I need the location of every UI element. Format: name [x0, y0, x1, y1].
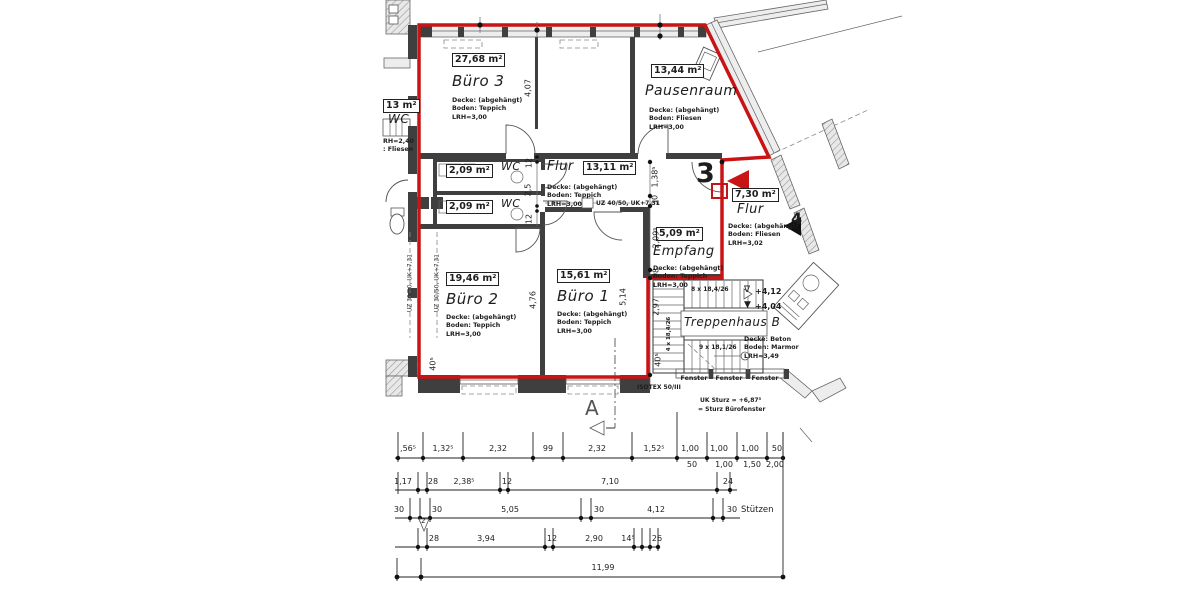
- vdim-wall-bottom: 12: [525, 214, 534, 224]
- area-badge-wc-a: 2,09 m²: [446, 164, 493, 178]
- sturz-note-line2: = Sturz Bürofenster: [698, 406, 765, 413]
- vdim-405-right: 40⁵: [654, 353, 663, 366]
- dim-r3-4: 4,12: [647, 505, 665, 514]
- fenster-label-2: Fenster: [716, 375, 743, 382]
- level-up-value: +4,12: [755, 287, 781, 296]
- dim-r3-1: 30: [432, 505, 442, 514]
- dimension-lines: [395, 412, 786, 581]
- dim-r4-3: 2,90: [585, 534, 603, 543]
- area-badge-wc-b: 2,09 m²: [446, 200, 493, 214]
- unit-number-3: 3: [696, 158, 715, 189]
- room-notes-pausenraum: Decke: (abgehängt) Boden: Fliesen LRH=3,…: [649, 107, 719, 132]
- beam-label-left-a: UZ 30/50, UK+7,31: [407, 254, 414, 312]
- pillar-number-2: 2: [421, 517, 425, 525]
- floorplan-canvas: 27,68 m² Büro 3 Decke: (abgehängt) Boden…: [0, 0, 1200, 600]
- area-badge-wc-left: 13 m²: [383, 99, 420, 113]
- dim-r2-1: 28: [428, 477, 438, 486]
- dim-r1b-0: 50: [687, 460, 697, 469]
- room-notes-buero1: Decke: (abgehängt) Boden: Teppich LRH=3,…: [557, 311, 627, 336]
- vdim-209: 2,09⁵: [652, 227, 661, 248]
- dim-r1-0: ,56⁵: [400, 444, 416, 453]
- dim-r3-5: 30: [727, 505, 737, 514]
- room-name-flur-right: Flur: [737, 202, 764, 217]
- dim-r1-5: 1,52⁵: [643, 444, 664, 453]
- area-badge-buero1: 15,61 m²: [557, 269, 610, 283]
- dim-r1-7: 1,00: [710, 444, 728, 453]
- room-notes-buero2: Decke: (abgehängt) Boden: Teppich LRH=3,…: [446, 314, 516, 339]
- room-name-wc-b: WC: [501, 197, 521, 210]
- area-badge-flur-right: 7,30 m²: [732, 188, 779, 202]
- room-notes-wc-left: RH=2,40 : Fliesen: [383, 138, 414, 155]
- level-down-icon: ▼: [744, 300, 751, 310]
- stair-run-top: 8 x 18,4/26: [691, 286, 729, 293]
- stuetzen-label: Stützen: [741, 505, 774, 515]
- room-name-empfang: Empfang: [653, 244, 715, 259]
- dim-r5-0: 11,99: [592, 563, 615, 572]
- dim-r1-3: 99: [543, 444, 553, 453]
- section-arrow: [590, 421, 604, 435]
- room-name-buero2: Büro 2: [446, 290, 498, 308]
- room-name-flur-mid: Flur: [547, 159, 574, 174]
- fenster-label-3: Fenster: [752, 375, 779, 382]
- dim-r4-1: 3,94: [477, 534, 495, 543]
- dim-r4-2: 12: [547, 534, 557, 543]
- vdim-297: 2,97: [652, 298, 661, 316]
- dim-r3-3: 30: [594, 505, 604, 514]
- dim-r1b-3: 2,00: [766, 460, 784, 469]
- sturz-note-line1: UK Sturz = +6,87⁵: [700, 397, 761, 404]
- dim-r3-2: 5,05: [501, 505, 519, 514]
- room-notes-treppenhaus: Decke: Beton Boden: Marmor LRH=3,49: [744, 336, 799, 361]
- area-badge-pausenraum: 13,44 m²: [651, 64, 704, 78]
- shaft-fixture: [773, 262, 838, 329]
- vdim-corridor-width: 2,5: [524, 184, 533, 197]
- vdim-wall-top: 12: [525, 158, 534, 168]
- room-notes-flur-right: Decke: (abgehängt) Boden: Fliesen LRH=3,…: [728, 223, 798, 248]
- vdim-405-left: 40⁵: [429, 357, 438, 370]
- stair-run-left: 4 x 18,4/26: [666, 317, 672, 351]
- dim-r1-2: 2,32: [489, 444, 507, 453]
- room-name-pausenraum: Pausenraum: [645, 83, 738, 99]
- area-badge-buero2: 19,46 m²: [446, 272, 499, 286]
- dim-r1-8: 1,00: [741, 444, 759, 453]
- dim-r1-6: 1,00: [681, 444, 699, 453]
- dim-r1-9: 50: [772, 444, 782, 453]
- fenster-label-1: Fenster: [681, 375, 708, 382]
- dim-r1-4: 2,32: [588, 444, 606, 453]
- level-down-value: +4,04: [755, 302, 781, 311]
- dim-r4-4: 14⁵: [621, 534, 634, 543]
- beam-label-left-b: UZ 30/50, UK+7,31: [434, 254, 441, 312]
- room-name-buero1: Büro 1: [557, 287, 609, 305]
- dim-r1b-1: 1,00: [715, 460, 733, 469]
- section-letter-a: A: [585, 396, 599, 420]
- area-badge-buero3: 27,68 m²: [452, 53, 505, 67]
- room-name-buero3: Büro 3: [452, 72, 504, 90]
- room-notes-buero3: Decke: (abgehängt) Boden: Teppich LRH=3,…: [452, 97, 522, 122]
- room-name-treppenhaus: Treppenhaus B: [684, 315, 780, 329]
- vdim-28: 28: [652, 268, 661, 278]
- vdim-buero2-height: 4,76: [529, 291, 538, 309]
- vdim-buero1-height: 5,14: [619, 288, 628, 306]
- isotex-note: ISOTEX 50/III: [637, 384, 681, 391]
- dim-r2-4: 7,10: [601, 477, 619, 486]
- area-badge-flur-mid: 13,11 m²: [583, 161, 636, 175]
- stair-run-low: 9 x 18,1/26: [699, 344, 737, 351]
- dim-r2-5: 24: [723, 477, 733, 486]
- dim-r3-0: 30: [394, 505, 404, 514]
- unit-number-4: 4: [791, 209, 802, 228]
- dim-r1b-2: 1,50: [743, 460, 761, 469]
- vdim-30: 30: [651, 195, 660, 205]
- vdim-buero3-height: 4,07: [524, 79, 533, 97]
- dim-r1-1: 1,32⁵: [432, 444, 453, 453]
- area-badge-empfang: 5,09 m²: [656, 227, 703, 241]
- dim-r4-0: 28: [429, 534, 439, 543]
- dim-r2-3: 12: [502, 477, 512, 486]
- dim-r2-2: 2,38⁵: [453, 477, 474, 486]
- dim-r2-0: 1,17: [394, 477, 412, 486]
- dim-r4-5: 26: [652, 534, 662, 543]
- room-name-wc-left: WC: [388, 112, 409, 126]
- level-up-icon: ∇: [744, 285, 750, 295]
- room-name-wc-a: WC: [501, 160, 521, 173]
- vdim-138: 1,38⁵: [651, 166, 660, 187]
